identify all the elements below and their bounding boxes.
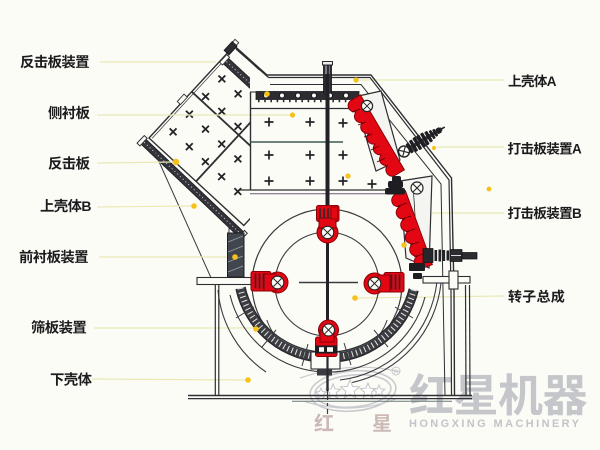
svg-text:B: B: [81, 198, 91, 214]
svg-text:A: A: [572, 142, 582, 157]
svg-text:B: B: [572, 206, 582, 221]
svg-text:R: R: [394, 370, 399, 376]
svg-text:A: A: [547, 74, 557, 89]
svg-text:HONGXING MACHINERY: HONGXING MACHINERY: [409, 418, 581, 430]
